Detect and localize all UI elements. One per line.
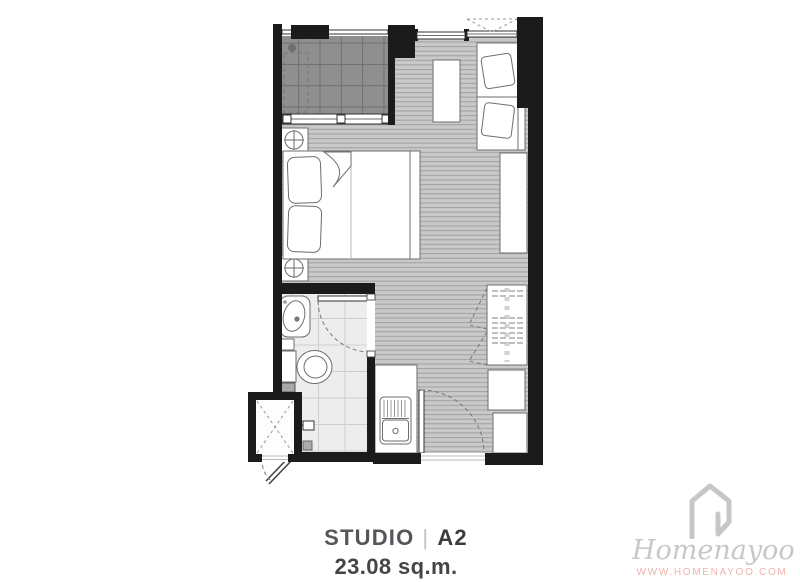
faucet-icon bbox=[294, 316, 299, 321]
fridge bbox=[488, 370, 525, 410]
pillow bbox=[287, 156, 322, 203]
house-icon bbox=[680, 481, 744, 539]
balcony-sliding-door bbox=[282, 114, 391, 124]
paper-holder bbox=[281, 383, 295, 392]
top-sliding-window bbox=[413, 29, 469, 41]
shower-shaft bbox=[256, 400, 294, 454]
kitchen-sink bbox=[380, 397, 411, 444]
plan-title: STUDIO|A2 bbox=[286, 525, 506, 551]
brand-name: Homenayoo bbox=[632, 537, 792, 564]
unit-area-label: 23.08 sq.m. bbox=[286, 554, 506, 580]
plan-caption: STUDIO|A2 23.08 sq.m. bbox=[286, 525, 506, 580]
cushion bbox=[481, 102, 515, 138]
casement-window bbox=[467, 19, 517, 37]
balcony-drain-icon bbox=[288, 44, 296, 52]
brand-url: WWW.HOMENAYOO.COM bbox=[632, 567, 792, 578]
kitchen-counter bbox=[375, 365, 417, 453]
side-console bbox=[500, 153, 527, 253]
bed bbox=[283, 151, 420, 259]
pillow bbox=[287, 205, 322, 252]
bath-shelf bbox=[280, 339, 294, 350]
unit-type-label: STUDIO bbox=[324, 525, 414, 550]
tv-board bbox=[433, 60, 460, 122]
balcony-tiles bbox=[282, 36, 388, 115]
floor-drain-icon bbox=[303, 441, 312, 450]
balcony bbox=[282, 36, 388, 115]
floorplan-page: STUDIO|A2 23.08 sq.m. Homenayoo WWW.HOME… bbox=[0, 0, 800, 582]
caption-divider: | bbox=[422, 525, 429, 550]
shower-mixer-icon bbox=[303, 421, 314, 430]
brand-watermark: Homenayoo WWW.HOMENAYOO.COM bbox=[632, 481, 792, 578]
nightstand-top bbox=[281, 128, 308, 152]
entry-cabinet bbox=[493, 413, 527, 453]
unit-code-label: A2 bbox=[437, 525, 468, 550]
toilet bbox=[281, 351, 332, 384]
cushion bbox=[481, 53, 516, 89]
